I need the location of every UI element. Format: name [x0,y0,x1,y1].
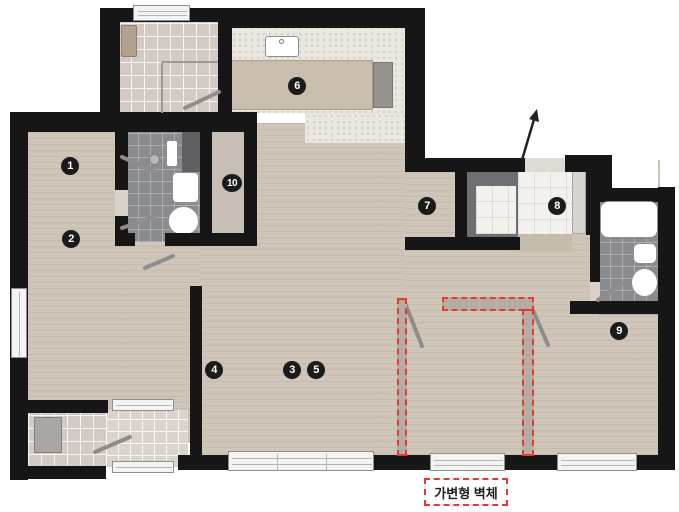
room-marker-1: 1 [61,157,79,175]
room-marker-5: 5 [307,361,325,379]
flexible-wall-horizontal [442,297,534,311]
flexible-wall-vertical-2 [522,309,534,456]
room-marker-2: 2 [62,230,80,248]
door-swing-hall [145,256,173,268]
flexible-wall-vertical-1 [397,298,407,456]
door-swing-bath1-top [122,157,155,172]
entry-arrow-icon [522,109,539,160]
lines-overlay [0,0,679,512]
room-marker-8: 8 [548,197,566,215]
door-swing-flex-2 [532,308,548,345]
door-swing-bath1-bottom [122,215,158,228]
flexible-wall-legend: 가변형 벽체 [424,478,508,506]
room-marker-3: 3 [283,361,301,379]
room-marker-10: 10 [222,174,242,192]
door-swing-flex-1 [405,303,422,346]
room-marker-6: 6 [288,77,306,95]
door-swing-balcony [95,437,130,452]
room-marker-7: 7 [418,197,436,215]
room-marker-4: 4 [205,361,223,379]
door-swing-bath2 [598,283,622,300]
room-marker-9: 9 [610,322,628,340]
floor-plan: 1 2 3 4 5 6 7 8 9 10 가변형 벽체 [0,0,679,512]
door-swing-entrance [185,92,219,108]
